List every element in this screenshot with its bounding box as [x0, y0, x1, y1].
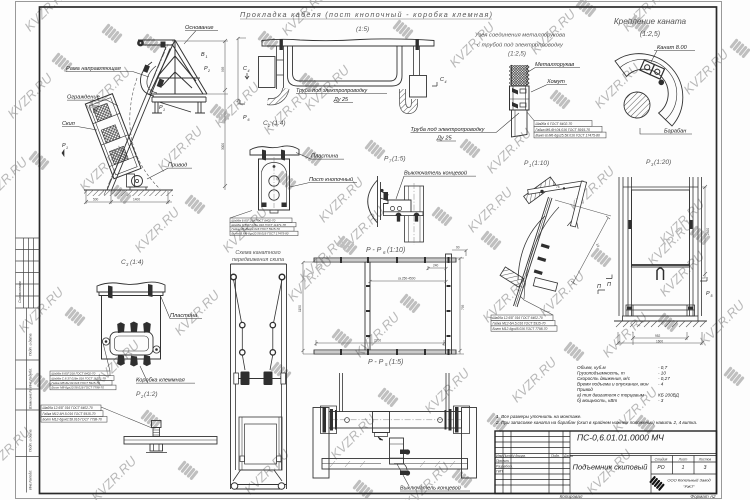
- svg-text:Инв.№дубл.: Инв.№дубл.: [29, 368, 33, 388]
- svg-text:P - P: P - P: [368, 359, 384, 366]
- svg-text:(1:4): (1:4): [272, 120, 286, 127]
- svg-text:- 0,27: - 0,27: [658, 376, 670, 381]
- svg-text:Ду 25: Ду 25: [333, 97, 349, 103]
- svg-text:Листов: Листов: [698, 458, 712, 462]
- svg-text:Скип: Скип: [62, 121, 75, 127]
- svg-text:П: П: [597, 284, 601, 290]
- svg-text:Подп. и дата: Подп. и дата: [29, 430, 33, 453]
- svg-text:ск.250-4500: ск.250-4500: [398, 277, 416, 281]
- svg-text:Лист: Лист: [678, 458, 688, 462]
- svg-text:3000: 3000: [221, 143, 225, 150]
- svg-text:Объем, куб.м: Объем, куб.м: [577, 365, 606, 370]
- svg-text:6: 6: [248, 118, 250, 122]
- svg-text:(1:5): (1:5): [392, 156, 406, 163]
- svg-text:Шайба С.6.37.016н.016 ГОСТ 113: Шайба С.6.37.016н.016 ГОСТ 11371-78: [232, 223, 287, 227]
- svg-text:3: 3: [126, 262, 129, 267]
- svg-text:Крепление каната: Крепление каната: [614, 17, 687, 26]
- svg-text:Ограждение: Ограждение: [67, 95, 100, 101]
- svg-text:3: 3: [704, 465, 707, 471]
- svg-text:Привод: Привод: [577, 387, 593, 392]
- svg-text:Шайба 12.65Г 016 ГОСТ 6402-70: Шайба 12.65Г 016 ГОСТ 6402-70: [493, 316, 543, 320]
- svg-text:795: 795: [461, 304, 465, 310]
- svg-text:Согласовано: Согласовано: [18, 281, 22, 303]
- svg-text:ПС-0,6.01.01.0000 МЧ: ПС-0,6.01.01.0000 МЧ: [577, 433, 664, 443]
- svg-text:P: P: [706, 291, 710, 297]
- svg-text:Винт В.М6-6gх20.58.016 ГОСТ 17: Винт В.М6-6gх20.58.016 ГОСТ 17475-80: [232, 232, 289, 236]
- svg-text:Схема канатного: Схема канатного: [235, 250, 280, 256]
- svg-text:C: C: [440, 77, 444, 83]
- svg-text:- 4: - 4: [658, 382, 664, 387]
- svg-text:(1:10): (1:10): [387, 247, 405, 254]
- svg-text:Рама направляющая: Рама направляющая: [66, 66, 121, 72]
- svg-text:Инв.№подл.: Инв.№подл.: [29, 470, 33, 490]
- svg-text:Привод: Привод: [168, 163, 187, 169]
- svg-text:Р: Р: [243, 115, 247, 121]
- svg-text:Шайба 6.65Г.016 ГОСТ 6402-70: Шайба 6.65Г.016 ГОСТ 6402-70: [232, 218, 276, 222]
- svg-text:Труба под электропроводку: Труба под электропроводку: [411, 127, 486, 133]
- svg-text:240: 240: [433, 264, 439, 268]
- svg-text:(1:2,5): (1:2,5): [640, 31, 660, 38]
- svg-text:Подп. и дата: Подп. и дата: [29, 334, 33, 357]
- svg-text:"РЖТ": "РЖТ": [683, 484, 695, 489]
- svg-text:Шайба 12.65Г 016 ГОСТ 6402-70: Шайба 12.65Г 016 ГОСТ 6402-70: [43, 406, 93, 410]
- svg-text:Грузоподъемность, т: Грузоподъемность, т: [577, 371, 625, 376]
- svg-text:Основание: Основание: [185, 25, 214, 31]
- svg-text:1. Все размеры уточнить на мон: 1. Все размеры уточнить на монтаже.: [496, 414, 582, 419]
- svg-text:Формат А2: Формат А2: [690, 494, 716, 499]
- svg-text:1: 1: [66, 146, 68, 150]
- svg-text:- 10: - 10: [658, 371, 666, 376]
- svg-text:Гайка М8-6Н.04.016 ГОСТ 5915-7: Гайка М8-6Н.04.016 ГОСТ 5915-70: [52, 381, 101, 385]
- svg-text:2. При запасовке каната на бар: 2. При запасовке каната на барабан (скип…: [495, 419, 697, 425]
- svg-text:1400: 1400: [133, 198, 140, 202]
- svg-text:Болт М8-6gх10.58.016 ГОСТ 7798: Болт М8-6gх10.58.016 ГОСТ 7798-70: [52, 386, 105, 390]
- svg-text:Изм Лист: Изм Лист: [496, 454, 512, 458]
- svg-text:500: 500: [93, 198, 99, 202]
- svg-text:Стадия: Стадия: [655, 458, 668, 462]
- svg-text:В: В: [201, 52, 205, 58]
- svg-text:Канат 8.00: Канат 8.00: [657, 45, 688, 51]
- svg-text:Гайка М6-6Н.04.016 ГОСТ 5915-7: Гайка М6-6Н.04.016 ГОСТ 5915-70: [536, 128, 591, 132]
- svg-text:5: 5: [385, 362, 388, 367]
- svg-text:P - P: P - P: [366, 247, 382, 254]
- svg-text:б) мощность, кВт: б) мощность, кВт: [577, 398, 617, 403]
- svg-text:Барабан: Барабан: [664, 129, 686, 135]
- svg-text:995: 995: [221, 66, 225, 72]
- svg-text:(1:4): (1:4): [130, 259, 144, 266]
- svg-text:1: 1: [529, 163, 531, 168]
- svg-text:Выключатель концевой: Выключатель концевой: [400, 485, 461, 492]
- svg-text:2820: 2820: [706, 228, 710, 235]
- svg-text:2200: 2200: [374, 339, 381, 343]
- svg-text:с трубой под электропроводку: с трубой под электропроводку: [477, 42, 564, 49]
- svg-text:Гайка М6-6Н.04.016 ГОСТ 5915-7: Гайка М6-6Н.04.016 ГОСТ 5915-70: [232, 227, 281, 231]
- svg-text:Проект.: Проект.: [496, 459, 510, 463]
- svg-text:Винт В.М6-6gх25.58.016 ГОСТ 17: Винт В.М6-6gх25.58.016 ГОСТ 17475-80: [536, 134, 600, 138]
- svg-text:Пластина: Пластина: [311, 154, 338, 160]
- svg-text:Шайба 8.65Г.016 ГОСТ 6402-70: Шайба 8.65Г.016 ГОСТ 6402-70: [52, 372, 96, 376]
- svg-text:14: 14: [595, 243, 600, 248]
- svg-text:Узел соединения металлорукова: Узел соединения металлорукова: [474, 33, 566, 39]
- svg-text:4: 4: [445, 80, 447, 84]
- svg-text:Гайка М12-6Н.5.016 ГОСТ 5915-7: Гайка М12-6Н.5.016 ГОСТ 5915-70: [493, 322, 546, 326]
- svg-text:передвижения скипа: передвижения скипа: [232, 257, 284, 263]
- svg-text:1: 1: [97, 112, 99, 116]
- svg-text:Шайба С.8.37.016н.016 ГОСТ 113: Шайба С.8.37.016н.016 ГОСТ 11371-78: [52, 376, 107, 380]
- svg-text:Гайка М12-6Н.5.016 ГОСТ 5915-7: Гайка М12-6Н.5.016 ГОСТ 5915-70: [43, 412, 96, 416]
- svg-text:78: 78: [556, 185, 560, 189]
- svg-text:Коробка клеммная: Коробка клеммная: [136, 378, 185, 384]
- svg-text:4: 4: [248, 69, 250, 73]
- svg-text:Болт М12-6gх42.58.016 ГОСТ 779: Болт М12-6gх42.58.016 ГОСТ 7798-70: [43, 418, 103, 422]
- svg-text:(1:2): (1:2): [144, 391, 158, 398]
- svg-text:Металлорукав: Металлорукав: [535, 62, 574, 68]
- svg-text:6: 6: [383, 250, 386, 255]
- svg-text:C: C: [243, 66, 247, 72]
- svg-text:П: П: [607, 282, 611, 288]
- svg-text:ООО Копельный Завод: ООО Копельный Завод: [667, 478, 711, 483]
- svg-text:Прокладка кабеля (пост кнопочн: Прокладка кабеля (пост кнопочный - короб…: [240, 10, 492, 19]
- svg-text:РО: РО: [657, 465, 664, 471]
- svg-text:1: 1: [163, 108, 165, 112]
- svg-text:а) тип двигателя с торцевым: а) тип двигателя с торцевым: [577, 393, 645, 398]
- svg-text:Пост кнопочный: Пост кнопочный: [309, 176, 353, 183]
- svg-text:Скорость движения, м/с: Скорость движения, м/с: [577, 376, 631, 381]
- svg-text:- 0,7: - 0,7: [658, 365, 668, 370]
- svg-text:Ду 25: Ду 25: [436, 136, 452, 142]
- svg-text:(1:10): (1:10): [532, 160, 549, 167]
- svg-text:Взам.инв.№: Взам.инв.№: [29, 389, 33, 409]
- svg-text:Труба под электропроводку: Труба под электропроводку: [296, 88, 367, 94]
- svg-text:(1:5): (1:5): [389, 359, 403, 366]
- svg-text:Время подъема и опускания, мин: Время подъема и опускания, мин: [577, 382, 649, 387]
- svg-text:952: 952: [655, 334, 661, 338]
- svg-text:Подп.: Подп.: [551, 454, 560, 458]
- svg-text:КБ 200ВД: КБ 200ВД: [658, 393, 680, 398]
- svg-text:1: 1: [682, 465, 685, 471]
- svg-text:Копировал: Копировал: [560, 494, 583, 499]
- svg-text:N докум.: N докум.: [512, 454, 526, 458]
- svg-text:1: 1: [206, 55, 208, 59]
- svg-text:(1:2,5): (1:2,5): [508, 51, 526, 58]
- svg-text:Хомут: Хомут: [546, 79, 565, 85]
- svg-text:Дата: Дата: [563, 454, 573, 458]
- svg-text:(1:20): (1:20): [654, 159, 671, 166]
- svg-text:(1:5): (1:5): [356, 26, 369, 33]
- svg-text:Пластина: Пластина: [170, 313, 197, 319]
- svg-text:- 3: - 3: [658, 398, 664, 403]
- svg-text:5: 5: [711, 294, 713, 298]
- svg-text:90: 90: [456, 246, 460, 250]
- svg-text:Шайба 6 ГОСТ 6402-70: Шайба 6 ГОСТ 6402-70: [536, 122, 573, 126]
- svg-text:Подъемник скиповый: Подъемник скиповый: [573, 463, 649, 472]
- svg-text:ГИП: ГИП: [496, 470, 503, 474]
- svg-text:Разработ.: Разработ.: [496, 465, 513, 469]
- svg-text:Болт М12-6gх45.016 ГОСТ 7798-7: Болт М12-6gх45.016 ГОСТ 7798-70: [493, 327, 548, 331]
- svg-text:2: 2: [207, 69, 210, 73]
- svg-text:1600: 1600: [656, 340, 663, 344]
- svg-text:Выключатель концевой: Выключатель концевой: [404, 170, 467, 177]
- svg-text:1150: 1150: [298, 305, 302, 312]
